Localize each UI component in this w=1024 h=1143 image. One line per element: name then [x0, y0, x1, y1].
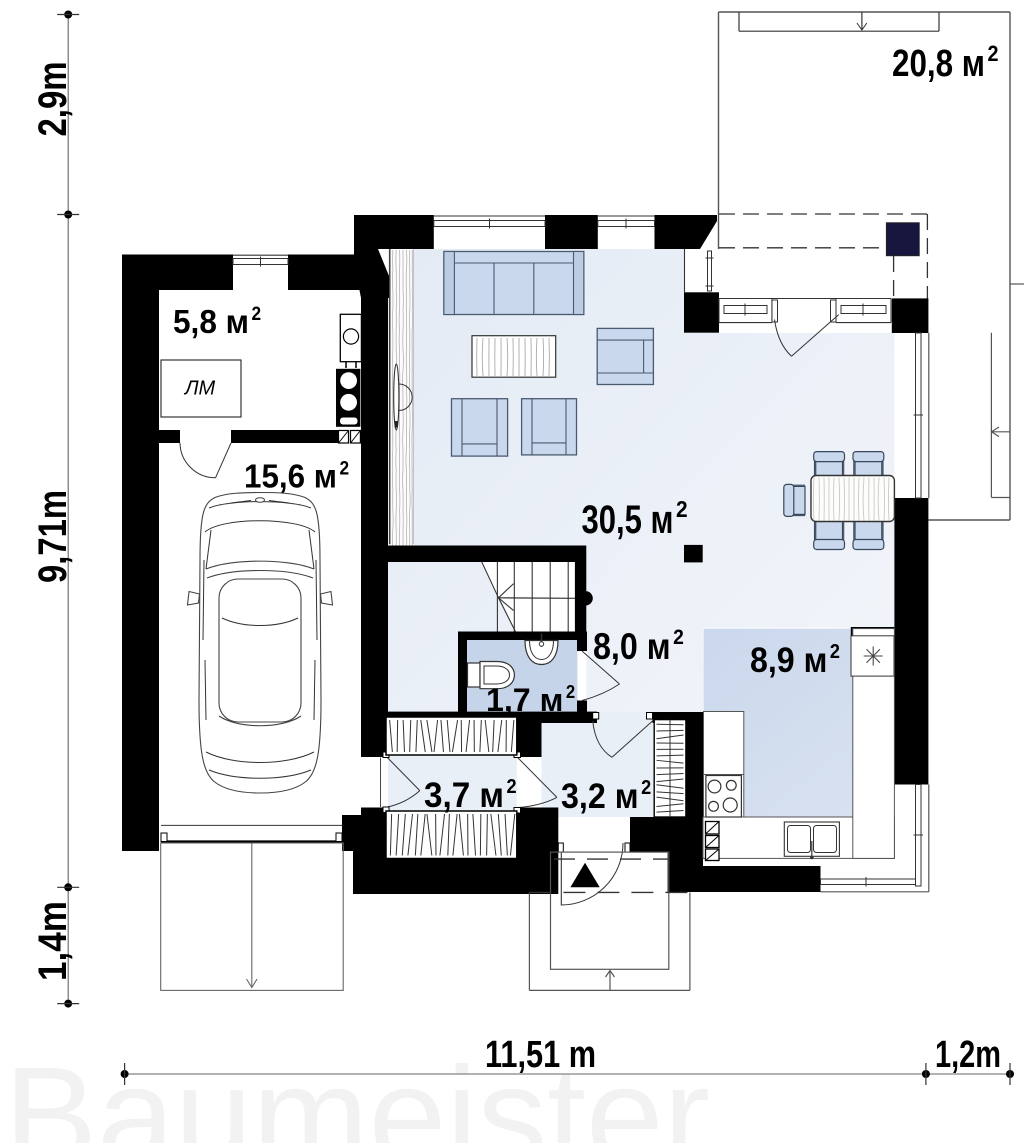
svg-text:2: 2 [830, 640, 840, 663]
svg-text:2: 2 [988, 41, 999, 66]
svg-text:2: 2 [340, 458, 350, 479]
svg-text:30,5 м: 30,5 м [582, 498, 674, 542]
svg-text:3,7 м: 3,7 м [424, 776, 504, 815]
svg-text:8,9 м: 8,9 м [750, 641, 827, 680]
svg-text:2: 2 [252, 304, 262, 325]
svg-text:2: 2 [673, 624, 684, 649]
svg-text:11,51 m: 11,51 m [485, 1034, 596, 1076]
svg-text:2: 2 [507, 775, 517, 798]
svg-text:ЛМ: ЛМ [183, 378, 216, 400]
svg-text:1,2m: 1,2m [935, 1034, 1001, 1076]
svg-text:3,2 м: 3,2 м [561, 777, 639, 816]
svg-text:2,9m: 2,9m [31, 62, 75, 137]
svg-text:1,4m: 1,4m [31, 901, 75, 981]
svg-text:2: 2 [676, 496, 688, 522]
svg-text:20,8 м: 20,8 м [892, 43, 985, 85]
svg-text:5,8 м: 5,8 м [173, 303, 249, 340]
svg-text:1,7 м: 1,7 м [486, 682, 563, 718]
svg-text:2: 2 [641, 776, 651, 799]
svg-text:8,0 м: 8,0 м [593, 626, 671, 667]
svg-text:2: 2 [566, 681, 575, 702]
svg-text:Baumeister: Baumeister [4, 1039, 710, 1143]
svg-text:15,6 м: 15,6 м [244, 458, 337, 495]
svg-text:9,71m: 9,71m [31, 490, 75, 583]
